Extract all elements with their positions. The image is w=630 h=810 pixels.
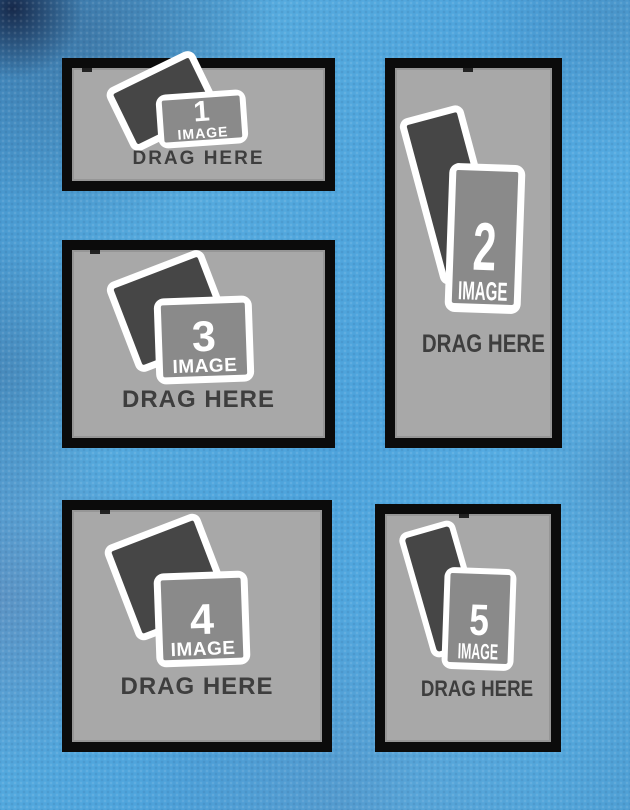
photo-front-frame-icon: 1 IMAGE [155, 89, 249, 149]
image-label: IMAGE [172, 356, 237, 377]
collage-canvas: 1 IMAGE DRAG HERE 2 IMAGE DRAG HERE [0, 0, 630, 810]
photo-frame-panel: 4 IMAGE [161, 578, 244, 661]
photo-placeholder-icon: 5 IMAGE [385, 514, 551, 742]
image-slot-4[interactable]: 4 IMAGE DRAG HERE [62, 500, 332, 752]
photo-front-frame-icon: 3 IMAGE [154, 295, 255, 384]
image-slot-3[interactable]: 3 IMAGE DRAG HERE [62, 240, 335, 448]
slot-number: 2 [472, 218, 498, 279]
photo-frame-panel: 1 IMAGE [162, 95, 243, 142]
drag-here-label: DRAG HERE [72, 386, 325, 414]
slot-number: 1 [193, 100, 211, 127]
photo-front-frame-icon: 2 IMAGE [444, 163, 525, 315]
photo-placeholder-icon: 4 IMAGE [72, 510, 322, 742]
image-label: IMAGE [170, 639, 235, 660]
photo-front-frame-icon: 5 IMAGE [441, 567, 517, 671]
photo-frame-panel: 5 IMAGE [447, 573, 510, 664]
image-slot-1[interactable]: 1 IMAGE DRAG HERE [62, 58, 335, 191]
drag-here-label: DRAG HERE [72, 673, 322, 701]
image-label: IMAGE [177, 124, 229, 142]
slot-number: 3 [191, 319, 216, 358]
image-label: IMAGE [457, 640, 498, 663]
photo-frame-panel: 3 IMAGE [161, 303, 247, 378]
image-slot-5[interactable]: 5 IMAGE DRAG HERE [375, 504, 561, 752]
slot-number: 4 [189, 602, 214, 641]
photo-front-frame-icon: 4 IMAGE [153, 570, 250, 667]
image-label: IMAGE [458, 277, 508, 305]
photo-frame-panel: 2 IMAGE [452, 170, 519, 305]
drag-here-label: DRAG HERE [72, 148, 325, 170]
image-slot-2[interactable]: 2 IMAGE DRAG HERE [385, 58, 562, 448]
drag-here-label: DRAG HERE [414, 676, 540, 702]
drag-here-label: DRAG HERE [422, 330, 539, 359]
photo-placeholder-icon: 2 IMAGE [395, 68, 552, 438]
slot-number: 5 [468, 602, 489, 641]
